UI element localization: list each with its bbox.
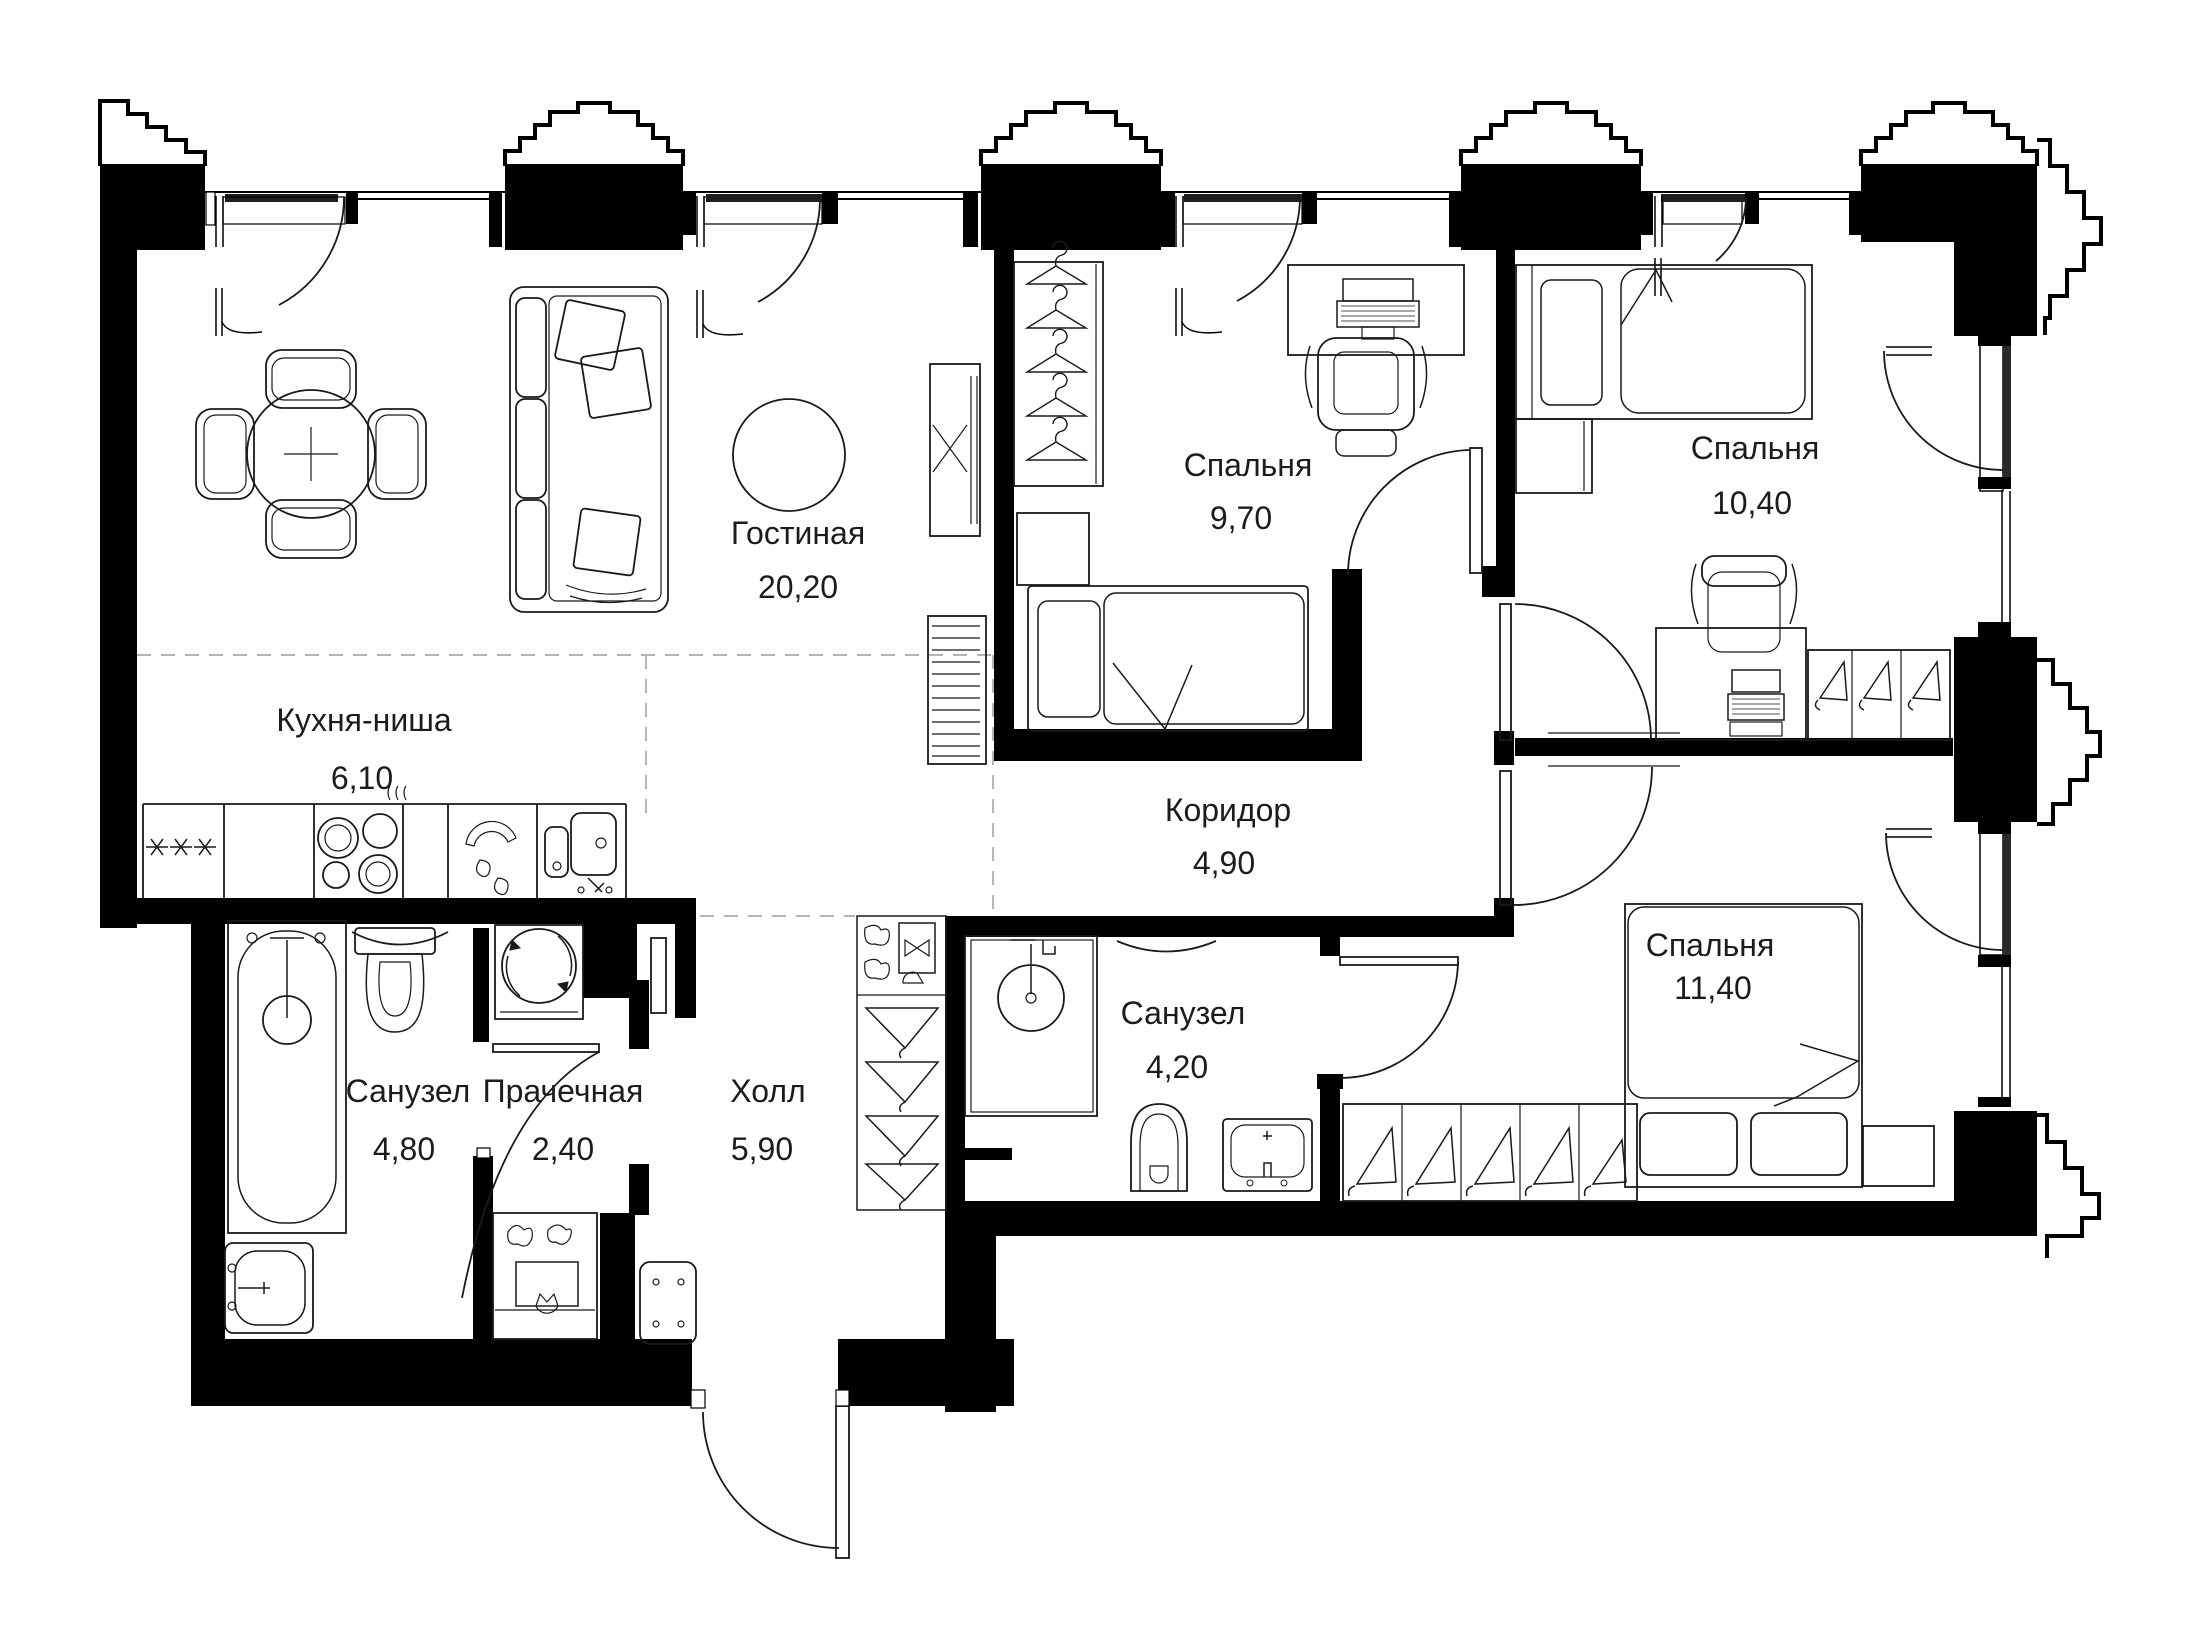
- svg-text:5,90: 5,90: [731, 1131, 793, 1167]
- svg-text:Санузел: Санузел: [346, 1073, 471, 1109]
- svg-text:10,40: 10,40: [1712, 485, 1792, 521]
- svg-text:11,40: 11,40: [1674, 970, 1752, 1006]
- svg-text:2,40: 2,40: [532, 1131, 594, 1167]
- svg-text:Гостиная: Гостиная: [731, 515, 865, 551]
- svg-text:20,20: 20,20: [758, 569, 838, 605]
- svg-text:6,10: 6,10: [331, 760, 393, 796]
- svg-text:9,70: 9,70: [1210, 500, 1272, 536]
- svg-text:Коридор: Коридор: [1165, 792, 1291, 828]
- svg-text:Спальня: Спальня: [1691, 430, 1820, 466]
- svg-text:Спальня: Спальня: [1646, 927, 1775, 963]
- svg-text:4,80: 4,80: [373, 1131, 435, 1167]
- svg-text:4,20: 4,20: [1146, 1049, 1208, 1085]
- svg-text:Кухня-ниша: Кухня-ниша: [276, 702, 452, 738]
- svg-text:Прачечная: Прачечная: [483, 1073, 644, 1109]
- svg-text:Спальня: Спальня: [1184, 447, 1313, 483]
- svg-text:Санузел: Санузел: [1121, 995, 1246, 1031]
- svg-text:4,90: 4,90: [1193, 845, 1255, 881]
- svg-text:Холл: Холл: [730, 1073, 805, 1109]
